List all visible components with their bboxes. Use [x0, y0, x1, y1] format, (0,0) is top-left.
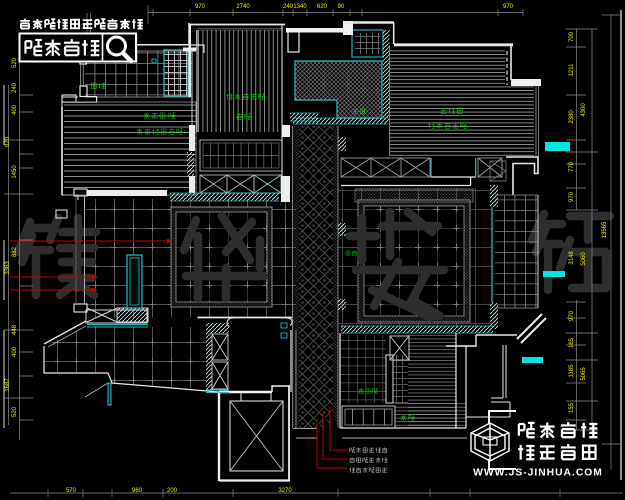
svg-text:970: 970 — [569, 310, 575, 321]
svg-text:240: 240 — [283, 4, 294, 10]
svg-text:4300: 4300 — [581, 103, 587, 117]
svg-text:970: 970 — [503, 4, 514, 10]
svg-text:448: 448 — [12, 324, 18, 335]
svg-text:155: 155 — [569, 402, 575, 413]
svg-text:700: 700 — [569, 31, 575, 42]
svg-text:5060: 5060 — [581, 252, 587, 266]
svg-text:WWW.JS-JINHUA.COM: WWW.JS-JINHUA.COM — [473, 468, 603, 479]
svg-text:3363: 3363 — [5, 261, 11, 275]
svg-text:520: 520 — [12, 406, 18, 417]
svg-text:2740: 2740 — [236, 4, 250, 10]
svg-text:1185: 1185 — [569, 364, 575, 378]
svg-text:3148: 3148 — [569, 251, 575, 265]
svg-text:1211: 1211 — [569, 63, 575, 77]
svg-text:770: 770 — [569, 161, 575, 172]
svg-text:200: 200 — [167, 488, 178, 494]
svg-text:400: 400 — [12, 104, 18, 115]
svg-text:165: 165 — [569, 337, 575, 348]
svg-text:882: 882 — [12, 246, 18, 257]
svg-text:240: 240 — [12, 82, 18, 93]
svg-text:400: 400 — [12, 346, 18, 357]
svg-text:570: 570 — [66, 488, 77, 494]
svg-text:5065: 5065 — [581, 367, 587, 381]
svg-text:2380: 2380 — [569, 110, 575, 124]
svg-text:13565: 13565 — [602, 221, 608, 238]
svg-text:970: 970 — [195, 4, 206, 10]
svg-text:520: 520 — [12, 57, 18, 68]
svg-text:620: 620 — [317, 4, 328, 10]
svg-text:960: 960 — [132, 488, 143, 494]
svg-text:820: 820 — [5, 136, 11, 147]
svg-text:90: 90 — [338, 4, 345, 10]
svg-text:3270: 3270 — [278, 488, 292, 494]
svg-text:1687: 1687 — [5, 378, 11, 392]
svg-text:1340: 1340 — [293, 4, 307, 10]
svg-text:970: 970 — [569, 191, 575, 202]
svg-text:1450: 1450 — [12, 165, 18, 179]
